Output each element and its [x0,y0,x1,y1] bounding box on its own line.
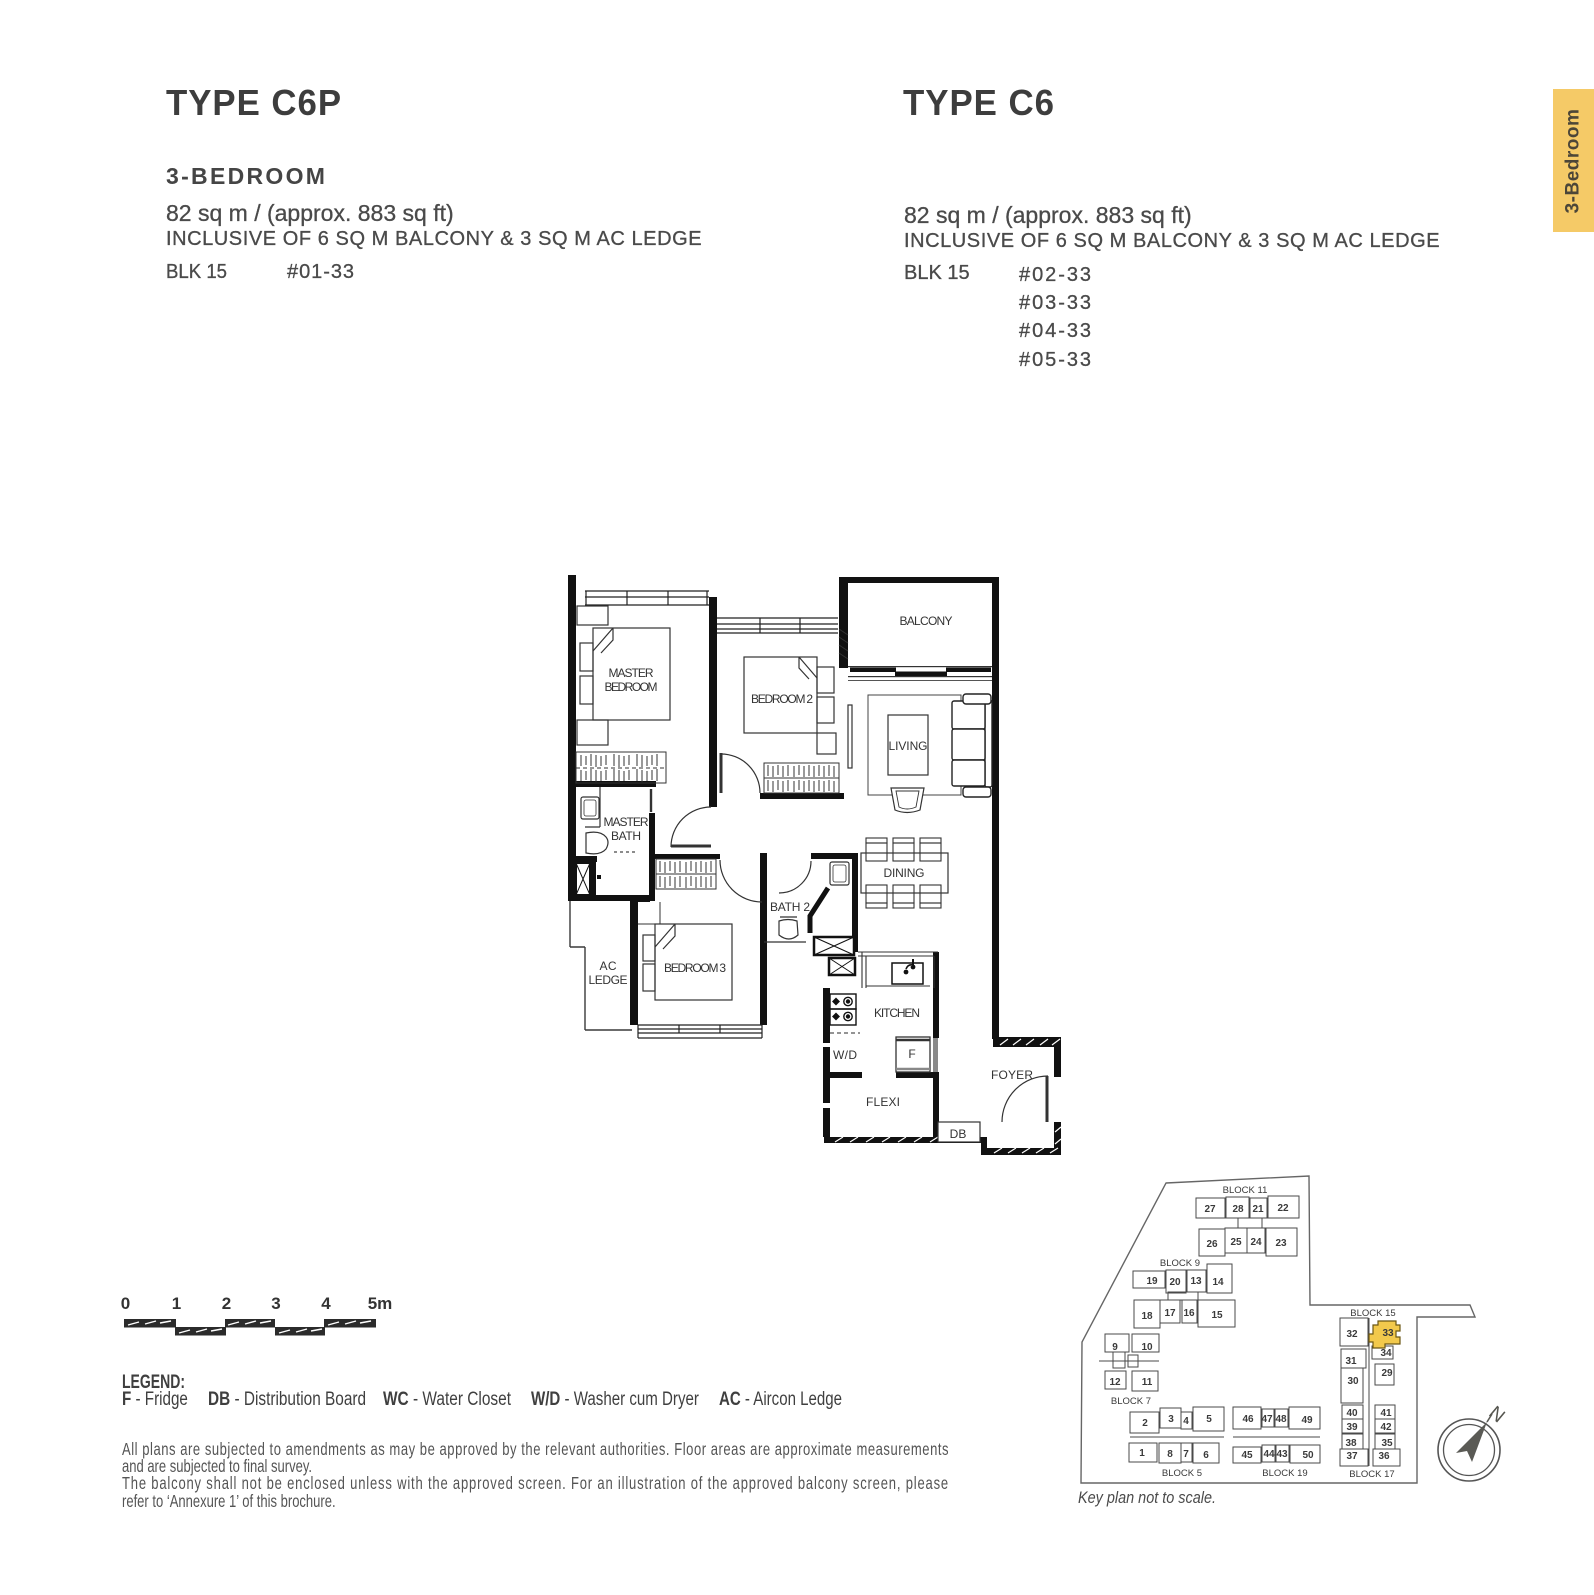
svg-text:44: 44 [1263,1449,1275,1460]
svg-text:23: 23 [1275,1238,1287,1249]
svg-text:32: 32 [1346,1329,1358,1340]
svg-text:1: 1 [172,1294,181,1313]
svg-text:40: 40 [1346,1408,1358,1419]
svg-text:DINING: DINING [884,866,925,880]
svg-text:18: 18 [1141,1311,1153,1322]
svg-text:BEDROOM 2: BEDROOM 2 [751,692,813,706]
svg-text:13: 13 [1190,1276,1202,1287]
svg-text:KITCHEN: KITCHEN [874,1006,920,1020]
svg-text:BLOCK 17: BLOCK 17 [1349,1469,1394,1480]
svg-text:MASTER: MASTER [604,815,649,829]
svg-text:38: 38 [1345,1438,1357,1449]
svg-text:26: 26 [1206,1239,1218,1250]
svg-text:LEDGE: LEDGE [589,973,628,987]
svg-text:5m: 5m [368,1294,393,1313]
svg-text:20: 20 [1169,1277,1181,1288]
svg-text:4: 4 [1183,1416,1189,1427]
svg-text:47: 47 [1261,1414,1273,1425]
svg-text:49: 49 [1301,1415,1313,1426]
svg-text:50: 50 [1302,1450,1314,1461]
svg-text:9: 9 [1112,1342,1118,1353]
svg-text:35: 35 [1381,1438,1393,1449]
svg-text:10: 10 [1141,1342,1153,1353]
svg-text:MASTER: MASTER [609,666,654,680]
svg-text:BALCONY: BALCONY [900,614,953,628]
svg-text:BLOCK 19: BLOCK 19 [1262,1468,1307,1479]
svg-text:16: 16 [1183,1308,1195,1319]
svg-text:15: 15 [1211,1310,1223,1321]
svg-text:2: 2 [222,1294,231,1313]
svg-text:F: F [908,1047,915,1061]
svg-text:37: 37 [1346,1451,1358,1462]
svg-text:43: 43 [1276,1449,1288,1460]
svg-text:33: 33 [1382,1328,1394,1339]
svg-text:39: 39 [1346,1422,1358,1433]
svg-text:46: 46 [1242,1414,1254,1425]
svg-text:27: 27 [1204,1204,1216,1215]
svg-text:BLOCK 15: BLOCK 15 [1350,1308,1395,1319]
svg-text:BLOCK 9: BLOCK 9 [1160,1258,1200,1269]
svg-text:24: 24 [1250,1237,1262,1248]
svg-text:42: 42 [1380,1422,1392,1433]
svg-text:8: 8 [1167,1449,1173,1460]
svg-text:DB: DB [950,1127,967,1141]
svg-text:BEDROOM 3: BEDROOM 3 [664,961,726,975]
svg-text:29: 29 [1381,1368,1393,1379]
svg-text:34: 34 [1380,1348,1392,1359]
svg-text:11: 11 [1142,1377,1153,1388]
svg-text:25: 25 [1230,1237,1242,1248]
svg-text:30: 30 [1347,1376,1359,1387]
svg-text:BLOCK 5: BLOCK 5 [1162,1468,1202,1479]
svg-text:3: 3 [271,1294,280,1313]
svg-text:1: 1 [1139,1448,1145,1459]
svg-text:FOYER: FOYER [991,1068,1033,1082]
svg-text:12: 12 [1109,1377,1121,1388]
svg-text:N: N [1485,1402,1509,1427]
svg-text:0: 0 [121,1294,130,1313]
svg-text:BLOCK 11: BLOCK 11 [1223,1185,1268,1196]
svg-text:22: 22 [1277,1203,1289,1214]
svg-text:FLEXI: FLEXI [866,1095,900,1109]
svg-text:BATH 2: BATH 2 [770,900,810,914]
svg-text:3: 3 [1168,1414,1174,1425]
svg-text:5: 5 [1206,1414,1212,1425]
svg-text:4: 4 [321,1294,331,1313]
svg-text:BEDROOM: BEDROOM [605,680,658,694]
svg-text:19: 19 [1146,1276,1158,1287]
svg-text:31: 31 [1345,1356,1357,1367]
svg-text:41: 41 [1380,1408,1392,1419]
svg-text:48: 48 [1275,1414,1287,1425]
svg-text:AC: AC [600,959,617,973]
svg-text:BLOCK 7: BLOCK 7 [1111,1396,1151,1407]
svg-text:LIVING: LIVING [889,739,928,753]
svg-text:28: 28 [1232,1204,1244,1215]
svg-text:BATH: BATH [611,829,641,843]
svg-text:36: 36 [1378,1451,1390,1462]
svg-text:6: 6 [1203,1450,1209,1461]
svg-text:W/D: W/D [833,1048,857,1062]
svg-text:14: 14 [1212,1277,1224,1288]
svg-text:17: 17 [1164,1308,1176,1319]
svg-text:45: 45 [1241,1450,1253,1461]
svg-text:7: 7 [1183,1449,1189,1460]
svg-text:2: 2 [1142,1418,1148,1429]
svg-text:21: 21 [1252,1204,1264,1215]
